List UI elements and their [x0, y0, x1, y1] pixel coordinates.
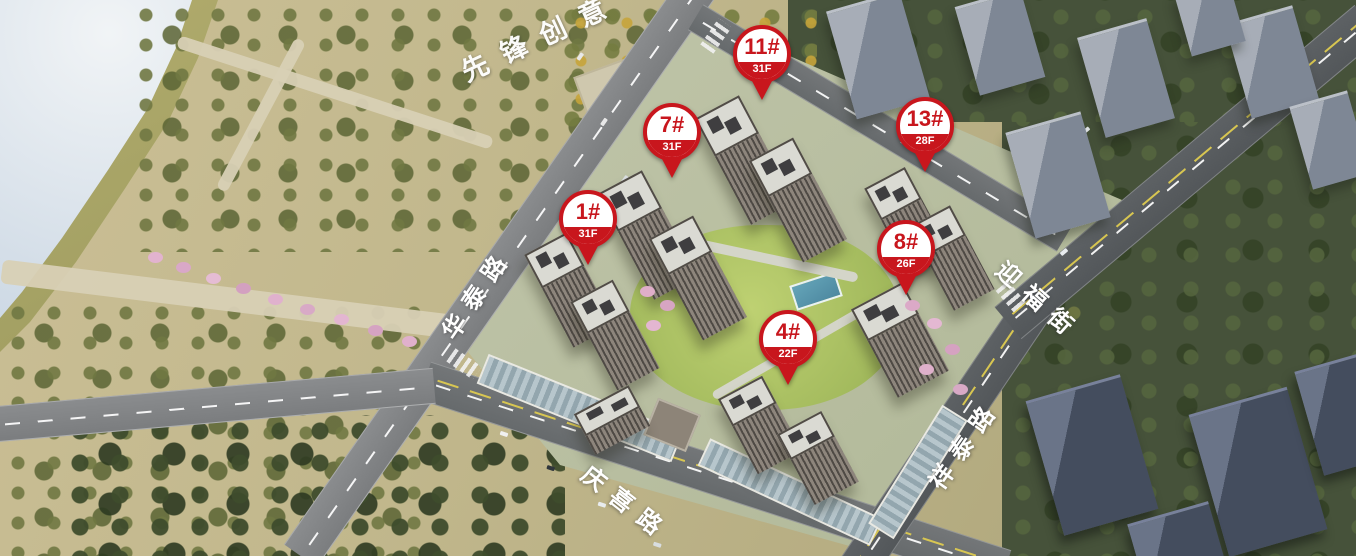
- building-pin-13[interactable]: 13# 28F: [896, 97, 954, 172]
- pin-tail-icon: [752, 81, 772, 100]
- building-floors: 31F: [647, 140, 697, 157]
- pin-circle: 11# 31F: [733, 25, 791, 83]
- pin-tail-icon: [662, 159, 682, 178]
- building-number: 13#: [900, 101, 950, 134]
- aerial-site-map: 先锋创意 华泰路 迎福街 祥泰路 庆喜路 1# 31F 4# 22F 7# 31…: [0, 0, 1356, 556]
- pin-tail-icon: [896, 276, 916, 295]
- building-floors: 26F: [881, 257, 931, 274]
- building-floors: 28F: [900, 134, 950, 151]
- building-floors: 22F: [763, 347, 813, 364]
- pin-circle: 4# 22F: [759, 310, 817, 368]
- blossom-trees-east: [905, 300, 920, 311]
- blossom-trees-west: [640, 286, 655, 297]
- building-number: 1#: [563, 194, 613, 227]
- building-pin-1[interactable]: 1# 31F: [559, 190, 617, 265]
- building-pin-4[interactable]: 4# 22F: [759, 310, 817, 385]
- building-number: 7#: [647, 107, 697, 140]
- pin-tail-icon: [778, 366, 798, 385]
- pin-circle: 1# 31F: [559, 190, 617, 248]
- building-number: 8#: [881, 224, 931, 257]
- pin-circle: 8# 26F: [877, 220, 935, 278]
- pin-tail-icon: [915, 153, 935, 172]
- building-pin-7[interactable]: 7# 31F: [643, 103, 701, 178]
- building-number: 4#: [763, 314, 813, 347]
- building-pin-11[interactable]: 11# 31F: [733, 25, 791, 100]
- blossom-trees-promenade: [148, 252, 163, 263]
- pin-circle: 7# 31F: [643, 103, 701, 161]
- building-floors: 31F: [563, 227, 613, 244]
- pin-tail-icon: [578, 246, 598, 265]
- pin-circle: 13# 28F: [896, 97, 954, 155]
- building-number: 11#: [737, 29, 787, 62]
- building-floors: 31F: [737, 62, 787, 79]
- building-pin-8[interactable]: 8# 26F: [877, 220, 935, 295]
